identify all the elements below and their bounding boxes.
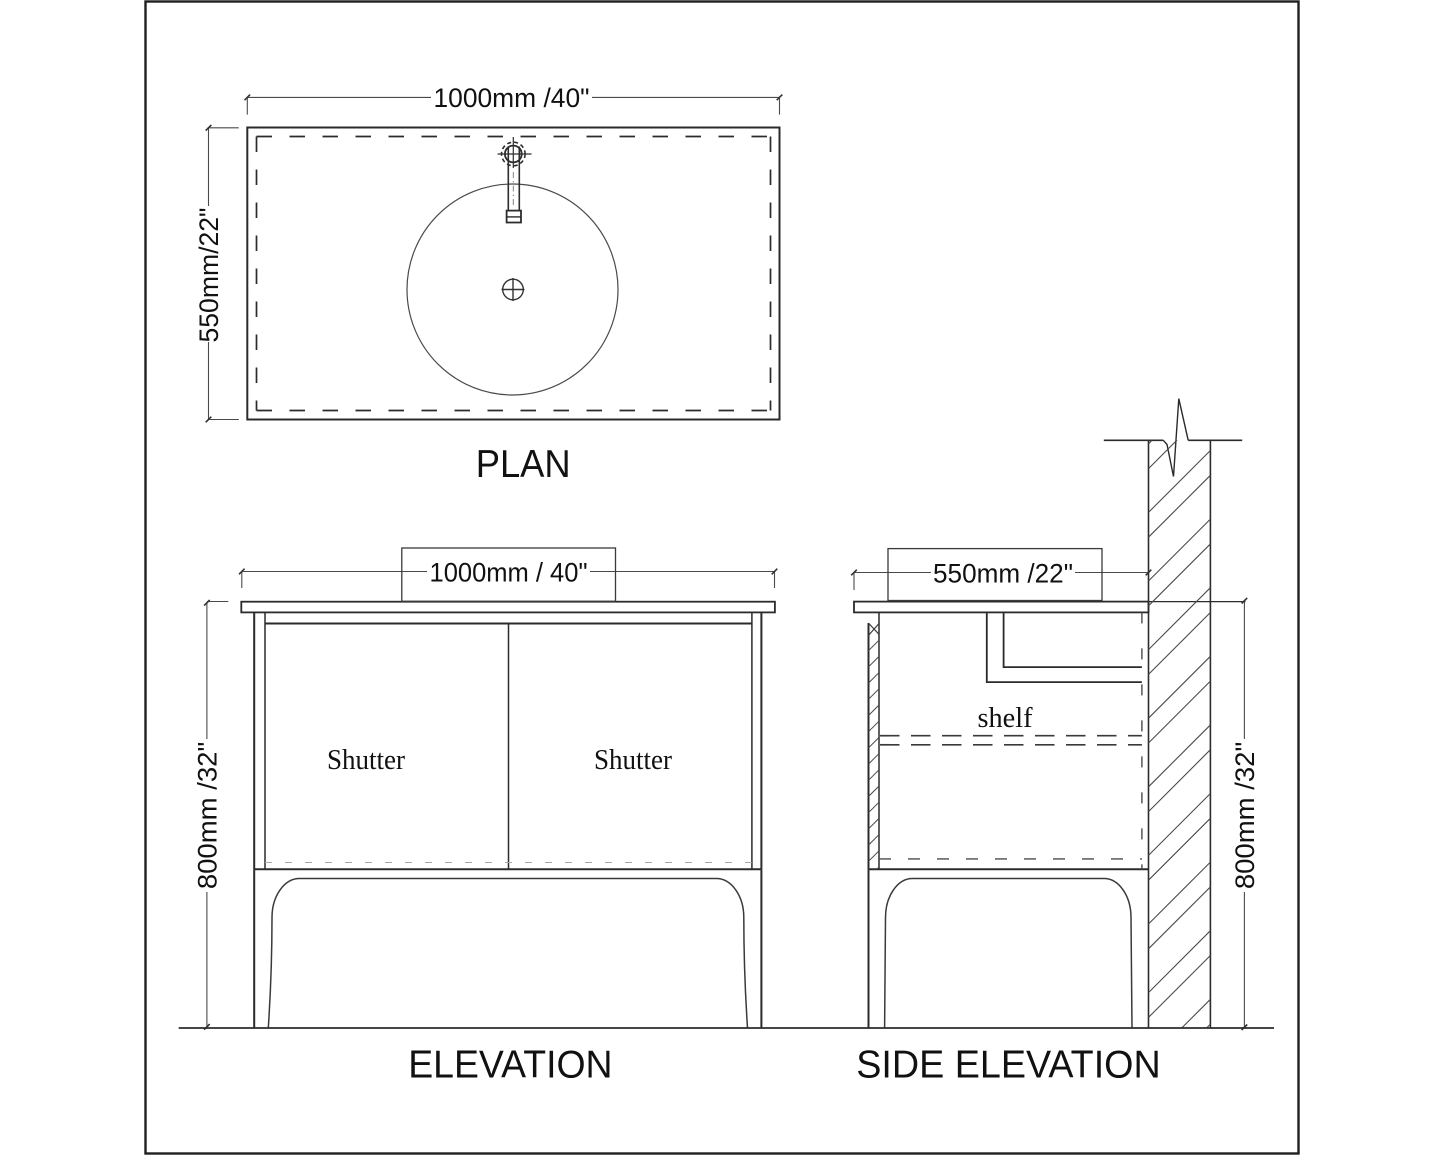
svg-text:550mm /22": 550mm /22" <box>933 559 1073 589</box>
svg-text:1000mm / 40": 1000mm / 40" <box>430 558 588 588</box>
svg-text:shelf: shelf <box>978 703 1034 734</box>
svg-text:550mm/22": 550mm/22" <box>194 208 224 343</box>
svg-text:Shutter: Shutter <box>327 745 406 776</box>
svg-text:800mm /32": 800mm /32" <box>1230 742 1260 889</box>
svg-text:ELEVATION: ELEVATION <box>408 1043 612 1086</box>
svg-text:PLAN: PLAN <box>476 443 571 486</box>
svg-text:800mm /32": 800mm /32" <box>193 742 223 889</box>
svg-text:SIDE ELEVATION: SIDE ELEVATION <box>856 1043 1161 1086</box>
svg-text:1000mm /40": 1000mm /40" <box>434 83 590 113</box>
svg-text:Shutter: Shutter <box>594 745 673 776</box>
